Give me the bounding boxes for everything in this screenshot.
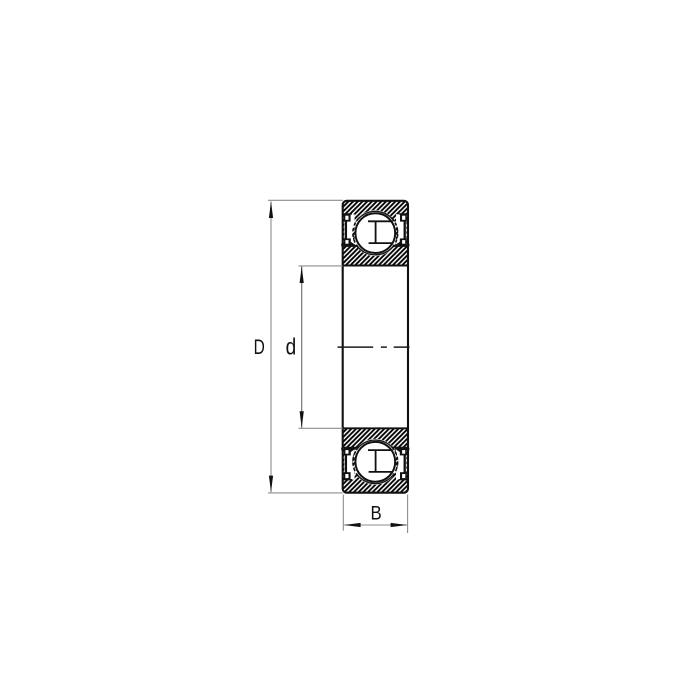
svg-text:d: d [286, 334, 297, 360]
svg-text:B: B [371, 503, 382, 525]
svg-text:D: D [254, 335, 265, 359]
